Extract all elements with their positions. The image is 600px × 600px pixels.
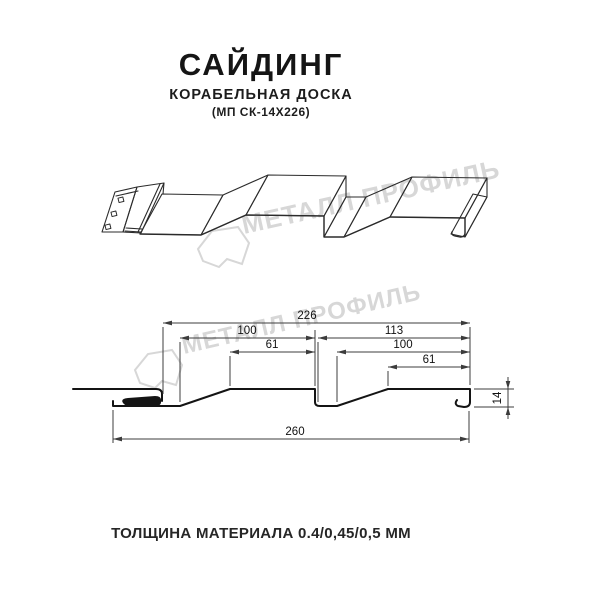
watermark-section: МЕТАЛЛ ПРОФИЛЬ <box>135 279 424 388</box>
face-right-hook <box>451 194 487 237</box>
material-thickness-note: ТОЛЩИНА МАТЕРИАЛА 0.4/0,45/0,5 ММ <box>111 525 411 542</box>
nail-strip-plate <box>102 187 137 232</box>
lock-fold-band <box>123 183 164 233</box>
dim-label-100-right: 100 <box>393 339 412 351</box>
watermark-brand-text: МЕТАЛЛ ПРОФИЛЬ <box>239 153 503 239</box>
dim-label-113: 113 <box>385 325 403 337</box>
dim-label-100-left: 100 <box>237 325 256 337</box>
lock-fold-inner-edge <box>138 184 160 232</box>
technical-drawing: МЕТАЛЛ ПРОФИЛЬ <box>0 0 600 600</box>
watermark-3d: МЕТАЛЛ ПРОФИЛЬ <box>198 153 503 267</box>
brand-logo-icon <box>135 350 182 388</box>
product-drawing-page: САЙДИНГ КОРАБЕЛЬНАЯ ДОСКА (МП СК-14Х226)… <box>0 0 600 600</box>
dim-label-61-left: 61 <box>266 339 279 351</box>
dim-label-14: 14 <box>492 391 504 404</box>
dim-label-260: 260 <box>285 426 304 438</box>
lock-seam-detail <box>122 396 161 406</box>
section-profile-outline <box>113 389 470 407</box>
dim-arrows <box>113 321 510 442</box>
dim-label-61-right: 61 <box>423 354 436 366</box>
dim-label-226: 226 <box>297 310 316 322</box>
